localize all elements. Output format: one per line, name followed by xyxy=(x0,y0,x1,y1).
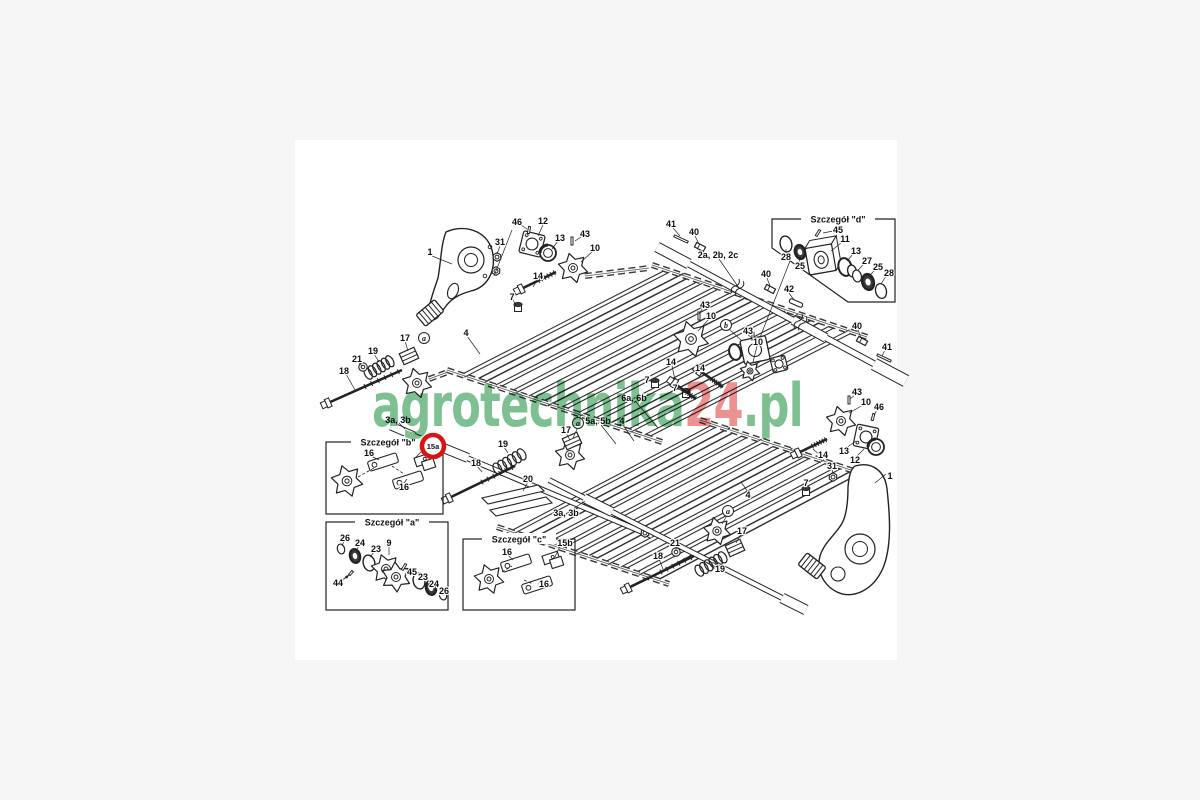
part-label-13: 13 xyxy=(839,446,849,456)
detail-title-a: Szczegół "a" xyxy=(365,518,420,528)
part-label-4: 4 xyxy=(463,328,468,338)
part-label-4: 4 xyxy=(619,416,624,426)
part-label-21: 21 xyxy=(670,538,680,548)
part-label-12: 12 xyxy=(850,455,860,465)
part-label-10: 10 xyxy=(590,243,600,253)
part-label-13: 13 xyxy=(555,233,565,243)
part-label-1: 1 xyxy=(887,471,892,481)
part-label-9: 9 xyxy=(386,538,391,548)
part-label-14: 14 xyxy=(695,363,705,373)
part-label-31: 31 xyxy=(495,237,505,247)
part-label-41: 41 xyxy=(882,342,892,352)
part-label-19: 19 xyxy=(368,346,378,356)
part-label-26: 26 xyxy=(340,533,350,543)
part-label-1: 1 xyxy=(427,247,432,257)
detail-title-d: Szczegół "d" xyxy=(810,215,865,225)
part-label-41: 41 xyxy=(666,219,676,229)
part-label-7: 7 xyxy=(672,383,677,393)
part-label-46: 46 xyxy=(512,217,522,227)
part-label-43: 43 xyxy=(700,300,710,310)
part-label-21: 21 xyxy=(352,354,362,364)
part-label-17: 17 xyxy=(737,526,747,536)
part-label-40: 40 xyxy=(761,269,771,279)
part-label-19: 19 xyxy=(715,564,725,574)
part-label-45: 45 xyxy=(407,567,417,577)
detail-title-b: Szczegół "b" xyxy=(360,438,415,448)
part-label-43: 43 xyxy=(580,229,590,239)
part-label-15b: 15b xyxy=(557,538,573,548)
part-label-16: 16 xyxy=(399,482,409,492)
part-label-7: 7 xyxy=(509,292,514,302)
part-label-40: 40 xyxy=(852,321,862,331)
part-label-46: 46 xyxy=(874,402,884,412)
part-label-18: 18 xyxy=(471,458,481,468)
part-label-6a6b: 6a, 6b xyxy=(621,393,647,403)
part-label-7: 7 xyxy=(803,478,808,488)
part-label-27: 27 xyxy=(862,256,872,266)
part-label-3a3b: 3a, 3b xyxy=(385,415,411,425)
part-label-43: 43 xyxy=(852,387,862,397)
part-label-17: 17 xyxy=(400,333,410,343)
part-label-4: 4 xyxy=(745,490,750,500)
part-label-20: 20 xyxy=(523,474,533,484)
part-label-24: 24 xyxy=(355,538,365,548)
parts-diagram: Szczegół "b"Szczegół "a"Szczegół "c"Szcz… xyxy=(0,0,1200,800)
part-label-11: 11 xyxy=(840,234,850,244)
part-label-23: 23 xyxy=(371,544,381,554)
part-label-2a2b2c: 2a, 2b, 2c xyxy=(698,250,739,260)
part-label-12: 12 xyxy=(538,216,548,226)
part-label-5a5b: 5a, 5b xyxy=(585,416,611,426)
part-label-23: 23 xyxy=(418,572,428,582)
part-label-26: 26 xyxy=(439,586,449,596)
part-label-24: 24 xyxy=(429,579,439,589)
part-label-14: 14 xyxy=(533,271,543,281)
part-label-b: b xyxy=(724,321,728,330)
part-label-16: 16 xyxy=(539,579,549,589)
part-label-a: a xyxy=(576,419,580,428)
part-label-10: 10 xyxy=(706,311,716,321)
part-label-3a3b: 3a, 3b xyxy=(553,508,579,518)
part-label-17: 17 xyxy=(561,425,571,435)
part-label-25: 25 xyxy=(795,261,805,271)
part-label-40: 40 xyxy=(689,227,699,237)
part-label-19: 19 xyxy=(498,439,508,449)
part-label-15a: 15a xyxy=(427,442,440,451)
part-label-28: 28 xyxy=(781,252,791,262)
part-label-16: 16 xyxy=(502,547,512,557)
part-label-31: 31 xyxy=(827,461,837,471)
part-label-a: a xyxy=(422,334,426,343)
part-label-10: 10 xyxy=(753,337,763,347)
part-label-18: 18 xyxy=(653,551,663,561)
part-label-25: 25 xyxy=(873,262,883,272)
part-label-10: 10 xyxy=(861,397,871,407)
detail-title-c: Szczegół "c" xyxy=(492,535,547,545)
part-label-14: 14 xyxy=(666,357,676,367)
part-label-28: 28 xyxy=(884,268,894,278)
part-label-44: 44 xyxy=(333,578,343,588)
part-label-16: 16 xyxy=(364,448,374,458)
part-label-a: a xyxy=(726,507,730,516)
part-label-7: 7 xyxy=(644,375,649,385)
part-label-18: 18 xyxy=(339,366,349,376)
part-label-42: 42 xyxy=(784,284,794,294)
part-label-13: 13 xyxy=(851,246,861,256)
part-label-43: 43 xyxy=(743,326,753,336)
part-label-14: 14 xyxy=(818,450,828,460)
